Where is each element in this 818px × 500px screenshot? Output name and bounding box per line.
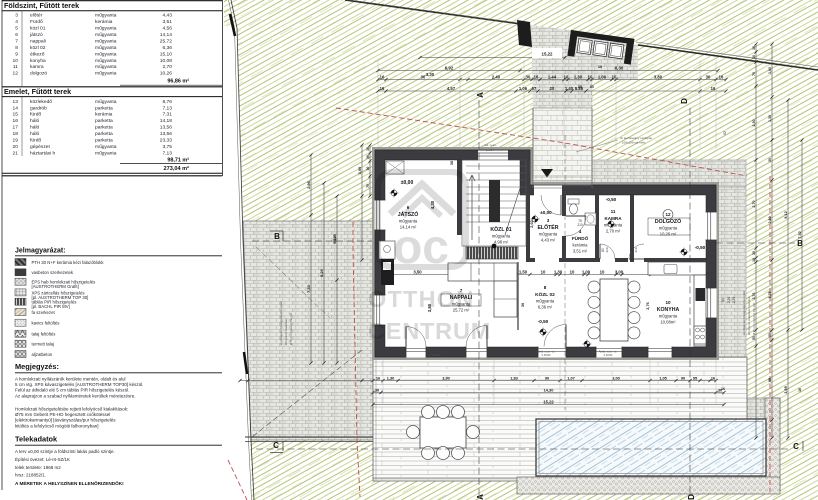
- svg-text:9,12: 9,12: [784, 211, 788, 218]
- svg-text:10: 10: [570, 269, 575, 274]
- svg-text:süll. nyan.: süll. nyan.: [484, 143, 497, 147]
- svg-text:70: 70: [752, 72, 756, 76]
- svg-text:parketta: parketta: [95, 118, 113, 124]
- svg-text:6,92: 6,92: [445, 65, 454, 70]
- svg-text:Az alaprajzon a szabad nyílásm: Az alaprajzon a szabad nyílásméretek ker…: [15, 393, 136, 398]
- svg-text:C: C: [273, 441, 279, 450]
- svg-text:PTH 30 N+F kerámia kézi falazó: PTH 30 N+F kerámia kézi falazóblokk: [32, 260, 105, 265]
- svg-text:D: D: [687, 494, 696, 500]
- svg-text:3,51: 3,51: [162, 19, 172, 25]
- svg-text:20: 20: [13, 144, 19, 150]
- svg-text:nappali: nappali: [30, 38, 46, 44]
- svg-text:30: 30: [366, 167, 370, 171]
- svg-text:Ø75 mm Geberit PE-HD: Ø75 mm Geberit PE-HD: [752, 302, 756, 335]
- svg-text:2,20: 2,20: [727, 297, 731, 304]
- svg-text:273,04 m²: 273,04 m²: [164, 165, 190, 172]
- svg-text:A terv ±0,00 szintje a földszi: A terv ±0,00 szintje a földszinti lakás …: [15, 449, 115, 454]
- svg-text:3,51 m²: 3,51 m²: [573, 249, 588, 254]
- svg-text:36: 36: [366, 155, 370, 159]
- svg-text:10: 10: [665, 300, 671, 305]
- svg-text:10,26 m²: 10,26 m²: [660, 232, 677, 237]
- svg-text:13: 13: [13, 99, 19, 105]
- svg-text:25: 25: [578, 85, 582, 89]
- svg-text:[pl. BACHL PIR MV]: [pl. BACHL PIR MV]: [32, 304, 70, 309]
- svg-text:hrsz: 218852/1.: hrsz: 218852/1.: [15, 473, 46, 478]
- svg-text:10: 10: [598, 64, 602, 69]
- svg-text:50: 50: [721, 298, 725, 302]
- svg-text:16: 16: [534, 74, 539, 79]
- svg-text:műgyanta: műgyanta: [95, 58, 117, 64]
- svg-text:2,30: 2,30: [752, 120, 756, 127]
- svg-text:16: 16: [711, 86, 716, 91]
- svg-text:CENTRUM: CENTRUM: [368, 318, 491, 344]
- svg-text:30: 30: [768, 333, 772, 337]
- svg-text:30: 30: [375, 387, 379, 392]
- svg-text:15,22: 15,22: [543, 399, 554, 404]
- svg-text:21: 21: [13, 150, 19, 156]
- svg-text:12: 12: [665, 212, 671, 217]
- svg-text:18: 18: [13, 131, 19, 137]
- svg-text:3,80: 3,80: [654, 74, 663, 79]
- svg-text:1,40: 1,40: [565, 86, 574, 91]
- svg-text:4: 4: [15, 19, 18, 25]
- svg-text:8: 8: [544, 285, 547, 290]
- svg-text:8,20: 8,20: [319, 268, 324, 277]
- svg-text:Felül az áthidaló elé 5 cm táb: Felül az áthidaló elé 5 cm táblás PIR hő…: [15, 388, 130, 393]
- svg-text:Homlokzati hőszigetelésbe rejt: Homlokzati hőszigetelésbe rejtett: [742, 291, 746, 335]
- svg-text:2,10: 2,10: [768, 217, 772, 224]
- svg-text:háztartási h: háztartási h: [30, 150, 56, 156]
- svg-text:23,33: 23,33: [160, 138, 173, 144]
- svg-text:B: B: [274, 232, 280, 241]
- svg-text:háló: háló: [30, 118, 40, 124]
- svg-text:4,98 m²: 4,98 m²: [494, 240, 509, 245]
- svg-text:1,30: 1,30: [554, 269, 563, 274]
- svg-text:1,30: 1,30: [387, 375, 395, 380]
- svg-text:30: 30: [521, 303, 525, 307]
- svg-text:játszó: játszó: [29, 32, 43, 38]
- svg-text:OTTHON: OTTHON: [368, 286, 474, 312]
- svg-text:9: 9: [15, 51, 18, 57]
- svg-text:közl 01: közl 01: [30, 26, 46, 32]
- svg-text:prit 54: prit 54: [486, 148, 494, 152]
- svg-text:2,02: 2,02: [530, 220, 534, 227]
- svg-text:7,13: 7,13: [162, 150, 172, 156]
- svg-text:10: 10: [588, 74, 593, 79]
- svg-text:10: 10: [612, 74, 617, 79]
- svg-text:Jelmagyarázat:: Jelmagyarázat:: [15, 248, 66, 255]
- svg-text:műgyanta: műgyanta: [95, 45, 117, 51]
- svg-text:C: C: [793, 442, 799, 451]
- svg-text:10: 10: [600, 269, 605, 274]
- svg-text:15,10: 15,10: [160, 51, 173, 57]
- svg-text:gépészet: gépészet: [30, 144, 50, 150]
- svg-text:Telekadatok: Telekadatok: [15, 435, 58, 444]
- svg-text:16: 16: [752, 46, 756, 50]
- svg-text:2,20: 2,20: [732, 297, 736, 304]
- svg-text:Emelet, Fűtött terek: Emelet, Fűtött terek: [4, 87, 71, 96]
- svg-text:3,90: 3,90: [442, 375, 450, 380]
- svg-text:16: 16: [721, 387, 725, 391]
- svg-text:étkező: étkező: [30, 51, 45, 57]
- svg-text:-0,50: -0,50: [538, 319, 549, 324]
- svg-text:parketta: parketta: [95, 138, 113, 144]
- svg-text:85: 85: [768, 378, 772, 382]
- svg-text:16: 16: [798, 388, 802, 392]
- svg-text:±0,00: ±0,00: [401, 180, 414, 186]
- svg-text:kerámia: kerámia: [95, 19, 113, 25]
- svg-text:háló: háló: [30, 131, 40, 137]
- svg-text:10: 10: [13, 58, 19, 64]
- svg-text:1,25: 1,25: [768, 292, 772, 299]
- svg-text:műgyanta: műgyanta: [95, 32, 117, 38]
- svg-text:2,96: 2,96: [306, 180, 311, 189]
- svg-text:kerámia: kerámia: [95, 112, 113, 118]
- svg-text:3,00: 3,00: [615, 269, 624, 274]
- svg-text:D: D: [680, 98, 689, 104]
- svg-text:parketta: parketta: [95, 125, 113, 131]
- svg-text:előtér: előtér: [30, 13, 43, 19]
- svg-text:5 cm vtg. XPS kávaszigetelés [: 5 cm vtg. XPS kávaszigetelés [AUSTROTHER…: [15, 382, 143, 387]
- svg-text:Építési övezet: Lé-III-SZ/1K: Építési övezet: Lé-III-SZ/1K: [15, 456, 70, 462]
- svg-text:fa szerkezet: fa szerkezet: [32, 310, 56, 315]
- svg-text:műgyanta: műgyanta: [95, 144, 117, 150]
- svg-text:Ø75 mm Geberit PE-HD: Ø75 mm Geberit PE-HD: [289, 312, 293, 345]
- svg-text:16: 16: [366, 147, 370, 151]
- svg-text:16: 16: [380, 74, 385, 79]
- svg-text:30: 30: [450, 161, 454, 165]
- svg-text:30: 30: [526, 74, 531, 79]
- svg-text:96,86 m²: 96,86 m²: [167, 79, 189, 85]
- svg-text:7,31: 7,31: [162, 112, 172, 118]
- svg-text:16: 16: [719, 74, 724, 79]
- svg-text:vasbeton szerkezetek: vasbeton szerkezetek: [32, 270, 74, 275]
- svg-text:3: 3: [15, 13, 18, 19]
- svg-text:6,36 m²: 6,36 m²: [538, 305, 553, 310]
- svg-text:termett talaj: termett talaj: [32, 342, 54, 347]
- svg-text:1,83: 1,83: [510, 375, 518, 380]
- svg-text:1,60: 1,60: [768, 67, 772, 74]
- svg-text:7: 7: [15, 38, 18, 44]
- svg-text:műgyanta: műgyanta: [659, 226, 678, 231]
- svg-text:15,22: 15,22: [542, 52, 554, 57]
- svg-text:műgyanta: műgyanta: [95, 71, 117, 77]
- svg-text:7,52: 7,52: [798, 231, 802, 238]
- svg-text:telek területe: 1968 m2: telek területe: 1968 m2: [15, 465, 61, 470]
- svg-text:14,18: 14,18: [160, 118, 173, 124]
- svg-text:10: 10: [541, 269, 546, 274]
- svg-text:A MÉRETEK A HELYSZÍNEN ELLENŐR: A MÉRETEK A HELYSZÍNEN ELLENŐRIZENDŐK!: [15, 479, 124, 486]
- svg-text:közlekedő: közlekedő: [30, 99, 52, 105]
- svg-text:műgyanta: műgyanta: [536, 299, 555, 304]
- svg-text:30: 30: [768, 158, 772, 162]
- svg-text:fürdő: fürdő: [30, 112, 41, 118]
- svg-text:7,13: 7,13: [162, 105, 172, 111]
- svg-text:2,40: 2,40: [492, 74, 501, 79]
- svg-text:1,00: 1,00: [598, 74, 607, 79]
- svg-text:1,30: 1,30: [768, 115, 772, 122]
- svg-text:90: 90: [545, 375, 549, 380]
- svg-text:210: 210: [605, 247, 609, 252]
- svg-text:aljzatbeton: aljzatbeton: [32, 352, 53, 357]
- svg-text:műgyanta: műgyanta: [95, 26, 117, 32]
- svg-text:10,26: 10,26: [160, 71, 173, 77]
- svg-text:0,90/90: 0,90/90: [542, 353, 551, 357]
- svg-text:fürdő: fürdő: [30, 138, 41, 144]
- svg-text:100x100-sal mély: 100x100-sal mély: [622, 141, 646, 145]
- svg-text:6: 6: [15, 32, 18, 38]
- svg-text:11: 11: [611, 209, 616, 214]
- svg-text:kavics feltöltés: kavics feltöltés: [32, 321, 60, 326]
- svg-text:-0,50: -0,50: [695, 245, 706, 250]
- svg-text:KÖZL 02: KÖZL 02: [535, 291, 555, 298]
- svg-text:1,44: 1,44: [548, 74, 557, 79]
- svg-text:90: 90: [681, 375, 685, 380]
- svg-text:14,30: 14,30: [544, 387, 554, 392]
- svg-text:92: 92: [723, 131, 727, 135]
- svg-text:1,30: 1,30: [574, 74, 583, 79]
- svg-text:kamra: kamra: [30, 64, 44, 70]
- svg-text:2,70: 2,70: [752, 201, 756, 208]
- svg-text:3: 3: [547, 218, 550, 223]
- svg-text:20: 20: [550, 86, 555, 91]
- svg-text:14,14: 14,14: [160, 32, 173, 38]
- svg-text:25,72: 25,72: [160, 38, 173, 44]
- svg-text:műgyanta: műgyanta: [492, 234, 511, 239]
- svg-text:közl 02: közl 02: [30, 45, 46, 51]
- svg-text:műgyanta: műgyanta: [95, 99, 117, 105]
- svg-text:parketta: parketta: [95, 105, 113, 111]
- svg-text:Földszint, Fűtött terek: Földszint, Fűtött terek: [4, 1, 79, 10]
- svg-text:parketta: parketta: [95, 131, 113, 137]
- svg-text:6,36: 6,36: [162, 45, 172, 51]
- svg-text:műgyanta: műgyanta: [95, 13, 117, 19]
- svg-text:12: 12: [13, 71, 19, 77]
- svg-text:Homlokzati hőszigetelésbe rejt: Homlokzati hőszigetelésbe rejtett: [279, 301, 283, 345]
- svg-text:Homlokzati hőszigetelésbe rejt: Homlokzati hőszigetelésbe rejtett lefoly…: [15, 407, 128, 412]
- svg-text:dolgozó: dolgozó: [30, 71, 47, 77]
- svg-text:16: 16: [13, 118, 19, 124]
- svg-text:műgyanta: műgyanta: [95, 64, 117, 70]
- svg-text:A: A: [476, 494, 485, 500]
- svg-text:[elektrokarmantyú] [ásványszál: [elektrokarmantyú] [ásványszálas/pur hős…: [15, 418, 116, 423]
- svg-text:0,90/90: 0,90/90: [604, 353, 613, 357]
- svg-text:KONYHA: KONYHA: [657, 307, 680, 313]
- svg-text:210: 210: [634, 247, 638, 252]
- svg-text:1,50: 1,50: [519, 269, 528, 274]
- svg-text:1,05: 1,05: [659, 375, 667, 380]
- svg-text:A homlokzati nyílászárók kerül: A homlokzati nyílászárók kerülete mentén…: [15, 377, 126, 382]
- svg-text:97: 97: [532, 86, 537, 91]
- svg-text:háló: háló: [30, 125, 40, 131]
- svg-text:15: 15: [13, 112, 19, 118]
- svg-text:1,00: 1,00: [582, 269, 591, 274]
- svg-text:10,08m²: 10,08m²: [660, 320, 676, 325]
- svg-text:13,56: 13,56: [160, 131, 173, 137]
- svg-text:3,00: 3,00: [358, 167, 362, 174]
- svg-text:3,89: 3,89: [784, 386, 788, 393]
- svg-text:10: 10: [752, 258, 756, 262]
- svg-text:30: 30: [752, 55, 756, 59]
- svg-text:14: 14: [13, 105, 19, 111]
- svg-text:műgyanta: műgyanta: [95, 38, 117, 44]
- svg-text:210: 210: [577, 223, 583, 227]
- svg-text:KÖZL 01: KÖZL 01: [490, 226, 511, 233]
- svg-text:±0,00: ±0,00: [540, 210, 552, 215]
- svg-text:oc: oc: [393, 221, 449, 274]
- svg-text:ELŐTÉR: ELŐTÉR: [537, 223, 558, 231]
- svg-text:2,70: 2,70: [162, 64, 172, 70]
- svg-text:[AUSTROTHERM Grafit]: [AUSTROTHERM Grafit]: [32, 284, 79, 289]
- svg-text:30: 30: [752, 251, 756, 255]
- svg-text:10,08: 10,08: [160, 58, 173, 64]
- svg-text:FÜRDŐ: FÜRDŐ: [572, 235, 589, 241]
- svg-text:75: 75: [366, 184, 370, 188]
- svg-text:10: 10: [564, 74, 569, 79]
- svg-text:4,57: 4,57: [447, 86, 456, 91]
- svg-text:lefolyócső kialakítás vázlatos: lefolyócső kialakítás vázlatos: [747, 296, 751, 335]
- svg-text:3,00: 3,00: [612, 375, 620, 380]
- svg-text:11: 11: [13, 64, 18, 70]
- svg-text:lefolyócső kialakítás: lefolyócső kialakítás: [284, 318, 288, 345]
- svg-text:17: 17: [13, 125, 19, 131]
- svg-text:kerámia: kerámia: [573, 243, 589, 248]
- svg-text:4,43 m²: 4,43 m²: [541, 238, 556, 243]
- svg-text:3,75: 3,75: [162, 144, 172, 150]
- svg-text:vb kerítésvány oszlopok: vb kerítésvány oszlopok: [620, 136, 653, 140]
- svg-text:8,76: 8,76: [162, 99, 172, 105]
- svg-text:-0,50: -0,50: [606, 197, 617, 202]
- svg-text:8: 8: [15, 45, 18, 51]
- svg-text:műgyanta: műgyanta: [539, 232, 558, 237]
- svg-text:A: A: [476, 92, 485, 98]
- svg-text:2,76: 2,76: [752, 293, 756, 300]
- svg-text:4,43: 4,43: [162, 13, 172, 19]
- svg-text:műgyanta: műgyanta: [95, 150, 117, 156]
- svg-text:4,56: 4,56: [162, 26, 172, 32]
- svg-text:3,30: 3,30: [426, 72, 435, 77]
- svg-text:2,76: 2,76: [646, 302, 650, 309]
- svg-text:1,06: 1,06: [519, 86, 528, 91]
- svg-text:16: 16: [380, 86, 385, 91]
- svg-text:KAMRA: KAMRA: [604, 216, 622, 221]
- svg-text:konyha: konyha: [30, 58, 46, 64]
- svg-text:7,33: 7,33: [306, 284, 311, 293]
- svg-text:kitöltés a lefolyócső mögötti: kitöltés a lefolyócső mögötti falhoronyb…: [15, 423, 99, 428]
- svg-text:talaj feltöltés: talaj feltöltés: [32, 332, 56, 337]
- svg-text:50: 50: [752, 336, 756, 340]
- svg-text:műgyanta: műgyanta: [659, 314, 678, 319]
- svg-text:gardrób: gardrób: [30, 105, 47, 111]
- svg-text:5: 5: [15, 26, 18, 32]
- svg-text:Ø75 mm Geberit PE-HD hegesztet: Ø75 mm Geberit PE-HD hegesztett csőkötés…: [15, 412, 110, 417]
- svg-text:Fürdő: Fürdő: [30, 19, 43, 25]
- svg-text:19: 19: [13, 138, 19, 144]
- svg-text:98,71 m²: 98,71 m²: [167, 158, 189, 164]
- svg-text:1,07: 1,07: [567, 375, 575, 380]
- svg-text:9,12: 9,12: [332, 235, 337, 244]
- svg-text:0,90/90: 0,90/90: [432, 353, 441, 357]
- svg-text:2,70 m²: 2,70 m²: [606, 229, 621, 234]
- svg-text:Megjegyzés:: Megjegyzés:: [15, 362, 59, 371]
- svg-text:30: 30: [706, 74, 711, 79]
- svg-text:műgyanta: műgyanta: [95, 51, 117, 57]
- svg-text:13,56: 13,56: [160, 125, 173, 131]
